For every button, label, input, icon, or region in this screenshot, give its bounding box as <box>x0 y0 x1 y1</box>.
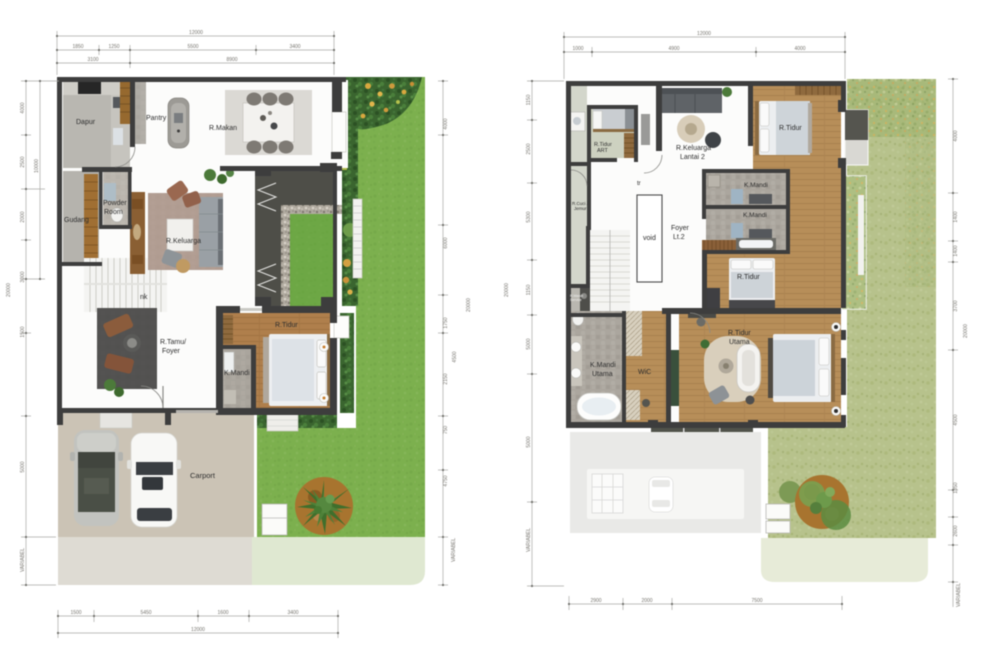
svg-text:1500: 1500 <box>20 326 26 337</box>
svg-text:2500: 2500 <box>20 156 26 167</box>
svg-text:5300: 5300 <box>526 211 532 222</box>
svg-text:6000: 6000 <box>443 237 449 248</box>
svg-text:1250: 1250 <box>108 44 119 50</box>
svg-text:5000: 5000 <box>526 436 532 447</box>
svg-text:tr: tr <box>637 181 641 187</box>
svg-text:Utama: Utama <box>729 339 750 346</box>
svg-text:VARIABEL: VARIABEL <box>956 583 962 607</box>
svg-text:20000: 20000 <box>963 324 969 338</box>
svg-text:VARIABEL: VARIABEL <box>526 528 532 552</box>
svg-text:nk: nk <box>140 294 148 301</box>
svg-text:5000: 5000 <box>526 338 532 349</box>
svg-text:1500: 1500 <box>70 610 81 616</box>
svg-text:4000: 4000 <box>794 46 805 52</box>
svg-text:R.Tidur: R.Tidur <box>275 322 298 329</box>
svg-text:1750: 1750 <box>443 317 449 328</box>
svg-text:2900: 2900 <box>590 598 601 604</box>
svg-text:K.Mandi: K.Mandi <box>224 370 250 377</box>
svg-text:K.Mandi: K.Mandi <box>744 182 768 189</box>
svg-text:void: void <box>643 235 656 242</box>
svg-text:20000: 20000 <box>466 298 472 312</box>
svg-text:1600: 1600 <box>217 610 228 616</box>
svg-text:8900: 8900 <box>226 57 237 63</box>
svg-text:2000: 2000 <box>20 211 26 222</box>
svg-text:Lt.2: Lt.2 <box>673 234 685 241</box>
svg-text:3700: 3700 <box>953 300 959 311</box>
svg-text:R.Keluarga: R.Keluarga <box>676 145 711 152</box>
svg-text:Foyer: Foyer <box>162 348 181 355</box>
svg-text:K.Mandi: K.Mandi <box>590 362 616 369</box>
svg-text:2000: 2000 <box>641 598 652 604</box>
svg-text:1400: 1400 <box>953 211 959 222</box>
svg-text:Room: Room <box>104 209 123 216</box>
svg-text:12000: 12000 <box>189 30 203 36</box>
svg-text:R.Tamu/: R.Tamu/ <box>160 339 186 346</box>
svg-text:1150: 1150 <box>526 284 532 295</box>
svg-text:Foyer: Foyer <box>671 225 690 232</box>
svg-text:4750: 4750 <box>443 475 449 486</box>
svg-text:12000: 12000 <box>191 627 205 633</box>
svg-text:2150: 2150 <box>443 373 449 384</box>
svg-text:WiC: WiC <box>638 369 651 376</box>
svg-text:VARIABEL: VARIABEL <box>20 548 26 572</box>
svg-text:Pantry: Pantry <box>146 115 167 122</box>
svg-text:Utama: Utama <box>592 371 613 378</box>
svg-text:1000: 1000 <box>572 46 583 52</box>
svg-text:4900: 4900 <box>668 46 679 52</box>
svg-text:Powder: Powder <box>103 200 127 207</box>
svg-text:R.Tidur: R.Tidur <box>779 125 802 132</box>
svg-text:2500: 2500 <box>526 143 532 154</box>
svg-text:Dapur: Dapur <box>76 119 96 126</box>
svg-text:7500: 7500 <box>751 598 762 604</box>
svg-text:5450: 5450 <box>140 610 151 616</box>
svg-text:R.Keluarga: R.Keluarga <box>166 238 201 245</box>
svg-text:3100: 3100 <box>87 57 98 63</box>
svg-text:4500: 4500 <box>953 414 959 425</box>
svg-text:R.Makan: R.Makan <box>209 125 237 132</box>
svg-text:10000: 10000 <box>34 159 40 173</box>
svg-text:Gudang: Gudang <box>64 217 89 224</box>
svg-text:Carport: Carport <box>190 471 216 480</box>
svg-text:VARIABEL: VARIABEL <box>451 538 457 562</box>
svg-text:R.Tidur: R.Tidur <box>728 330 751 337</box>
svg-text:5500: 5500 <box>187 44 198 50</box>
svg-text:1400: 1400 <box>953 245 959 256</box>
svg-text:Lantai 2: Lantai 2 <box>680 154 705 161</box>
svg-text:Jemur: Jemur <box>574 206 587 211</box>
svg-text:K.Mandi: K.Mandi <box>743 212 767 219</box>
svg-text:1350: 1350 <box>953 482 959 493</box>
svg-text:R.Tidur: R.Tidur <box>737 274 760 281</box>
svg-text:12000: 12000 <box>697 31 711 37</box>
svg-text:ART: ART <box>597 148 609 154</box>
svg-text:4000: 4000 <box>953 130 959 141</box>
svg-text:3000: 3000 <box>20 271 26 282</box>
svg-text:Service: Service <box>570 298 582 302</box>
svg-text:20000: 20000 <box>504 283 510 297</box>
svg-text:4000: 4000 <box>443 118 449 129</box>
svg-text:4500: 4500 <box>452 351 458 362</box>
svg-text:1850: 1850 <box>72 44 83 50</box>
svg-text:3400: 3400 <box>287 610 298 616</box>
svg-text:4000: 4000 <box>20 102 26 113</box>
svg-text:2600: 2600 <box>953 525 959 536</box>
svg-text:3400: 3400 <box>289 44 300 50</box>
svg-text:750: 750 <box>443 426 449 435</box>
svg-text:20000: 20000 <box>6 283 12 297</box>
svg-text:1150: 1150 <box>526 94 532 105</box>
svg-text:5000: 5000 <box>20 461 26 472</box>
